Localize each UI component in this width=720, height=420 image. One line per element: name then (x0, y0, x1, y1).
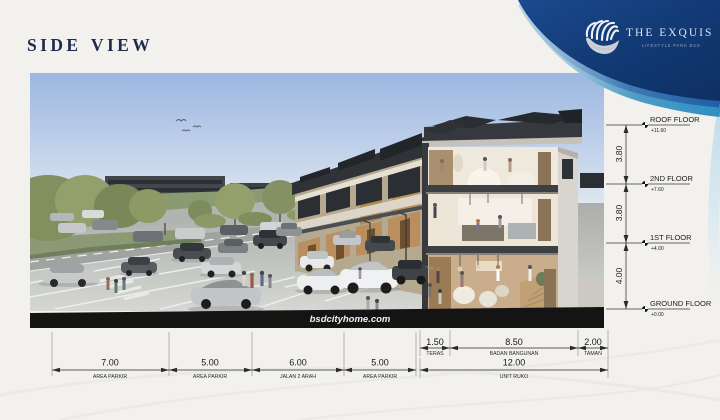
svg-text:8.50: 8.50 (505, 337, 523, 347)
svg-text:AREA PARKIR: AREA PARKIR (363, 374, 397, 380)
svg-text:TAMAN: TAMAN (584, 351, 602, 357)
svg-text:LIFESTYLE PARK BSD: LIFESTYLE PARK BSD (642, 43, 701, 48)
svg-text:ROOF FLOOR: ROOF FLOOR (650, 115, 700, 124)
svg-text:+7.60: +7.60 (651, 187, 664, 193)
svg-text:BADAN BANGUNAN: BADAN BANGUNAN (490, 351, 539, 357)
svg-text:12.00: 12.00 (503, 358, 526, 368)
svg-text:4.00: 4.00 (614, 267, 624, 284)
svg-text:GROUND FLOOR: GROUND FLOOR (650, 299, 712, 308)
svg-text:2.00: 2.00 (584, 337, 602, 347)
svg-text:THE EXQUIS: THE EXQUIS (626, 27, 713, 39)
svg-text:5.00: 5.00 (201, 358, 219, 368)
svg-text:AREA PARKIR: AREA PARKIR (193, 374, 227, 380)
svg-text:5.00: 5.00 (371, 358, 389, 368)
svg-text:JALAN 2 ARAH: JALAN 2 ARAH (280, 374, 316, 380)
svg-text:2ND FLOOR: 2ND FLOOR (650, 174, 694, 183)
svg-text:bsdcityhome.com: bsdcityhome.com (310, 314, 391, 325)
svg-text:1ST FLOOR: 1ST FLOOR (650, 233, 692, 242)
svg-text:6.00: 6.00 (289, 358, 307, 368)
svg-text:+4.00: +4.00 (651, 246, 664, 252)
svg-text:7.00: 7.00 (101, 358, 119, 368)
svg-text:+11.60: +11.60 (651, 128, 666, 134)
svg-text:3.80: 3.80 (614, 145, 624, 162)
svg-text:UNIT RUKO: UNIT RUKO (500, 374, 528, 380)
svg-text:TERAS: TERAS (426, 351, 444, 357)
svg-text:1.50: 1.50 (426, 337, 444, 347)
svg-text:3.80: 3.80 (614, 204, 624, 221)
svg-text:AREA PARKIR: AREA PARKIR (93, 374, 127, 380)
svg-text:+0.00: +0.00 (651, 312, 664, 318)
